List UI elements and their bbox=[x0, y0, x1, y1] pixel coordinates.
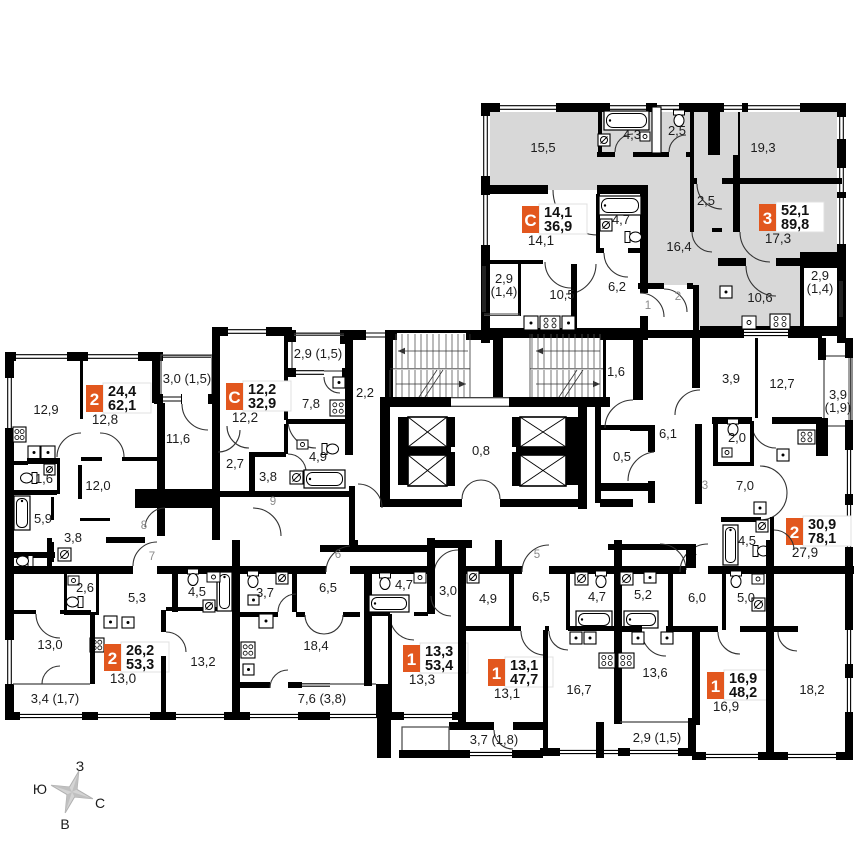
svg-text:7,6 (3,8): 7,6 (3,8) bbox=[298, 691, 346, 706]
svg-text:12,8: 12,8 bbox=[92, 412, 118, 427]
svg-text:З: З bbox=[76, 758, 84, 774]
svg-text:16,9: 16,9 bbox=[713, 699, 739, 714]
svg-text:(1,9): (1,9) bbox=[825, 400, 852, 415]
svg-text:3,0: 3,0 bbox=[439, 583, 457, 598]
svg-text:1: 1 bbox=[711, 677, 720, 696]
svg-text:1,6: 1,6 bbox=[607, 364, 625, 379]
svg-text:6: 6 bbox=[335, 549, 341, 561]
svg-text:2,5: 2,5 bbox=[668, 123, 686, 138]
svg-text:16,7: 16,7 bbox=[566, 682, 591, 697]
svg-text:12,7: 12,7 bbox=[769, 376, 794, 391]
svg-text:4,7: 4,7 bbox=[395, 577, 413, 592]
svg-text:13,3: 13,3 bbox=[409, 672, 435, 687]
svg-text:1,6: 1,6 bbox=[35, 471, 53, 486]
svg-text:13,0: 13,0 bbox=[37, 637, 62, 652]
svg-text:16,4: 16,4 bbox=[666, 239, 691, 254]
svg-text:12,9: 12,9 bbox=[33, 402, 58, 417]
svg-text:6,0: 6,0 bbox=[688, 590, 706, 605]
svg-text:4,3: 4,3 bbox=[623, 127, 641, 142]
svg-text:1: 1 bbox=[492, 664, 501, 683]
svg-text:4,7: 4,7 bbox=[612, 212, 630, 227]
svg-text:3,7: 3,7 bbox=[256, 585, 274, 600]
svg-text:С: С bbox=[524, 211, 536, 230]
svg-text:4,5: 4,5 bbox=[738, 533, 756, 548]
svg-text:5,9: 5,9 bbox=[34, 511, 52, 526]
svg-text:12,2: 12,2 bbox=[232, 410, 258, 425]
svg-text:9: 9 bbox=[270, 496, 276, 508]
svg-text:1: 1 bbox=[407, 650, 416, 669]
svg-text:2,6: 2,6 bbox=[76, 580, 94, 595]
svg-text:2: 2 bbox=[108, 649, 117, 668]
svg-text:5: 5 bbox=[534, 549, 540, 561]
svg-text:15,5: 15,5 bbox=[530, 140, 555, 155]
svg-text:7,0: 7,0 bbox=[736, 478, 754, 493]
svg-text:6,2: 6,2 bbox=[608, 279, 626, 294]
svg-text:3,8: 3,8 bbox=[64, 530, 82, 545]
svg-text:(1,4): (1,4) bbox=[491, 284, 518, 299]
svg-text:2: 2 bbox=[675, 291, 681, 303]
svg-text:3,7 (1,8): 3,7 (1,8) bbox=[470, 732, 518, 747]
svg-text:0,5: 0,5 bbox=[613, 449, 631, 464]
svg-text:С: С bbox=[95, 795, 105, 811]
svg-text:2,7: 2,7 bbox=[226, 456, 244, 471]
svg-text:4,5: 4,5 bbox=[188, 584, 206, 599]
svg-text:17,3: 17,3 bbox=[765, 231, 791, 246]
svg-text:3,9: 3,9 bbox=[722, 371, 740, 386]
svg-text:В: В bbox=[60, 816, 69, 832]
svg-text:4,7: 4,7 bbox=[588, 589, 606, 604]
svg-text:3,8: 3,8 bbox=[259, 469, 277, 484]
svg-text:14,1: 14,1 bbox=[528, 233, 554, 248]
svg-text:0,8: 0,8 bbox=[472, 443, 490, 458]
svg-text:5,2: 5,2 bbox=[634, 587, 652, 602]
svg-text:2,9 (1,5): 2,9 (1,5) bbox=[294, 346, 342, 361]
svg-text:12,0: 12,0 bbox=[85, 478, 110, 493]
svg-text:13,1: 13,1 bbox=[494, 686, 520, 701]
svg-text:(1,4): (1,4) bbox=[807, 281, 834, 296]
svg-text:18,2: 18,2 bbox=[799, 682, 824, 697]
svg-text:С: С bbox=[228, 388, 240, 407]
svg-text:13,2: 13,2 bbox=[190, 654, 215, 669]
svg-text:7,8: 7,8 bbox=[302, 396, 320, 411]
svg-text:10,5: 10,5 bbox=[549, 287, 574, 302]
svg-text:4,9: 4,9 bbox=[479, 591, 497, 606]
svg-text:6,5: 6,5 bbox=[319, 580, 337, 595]
svg-text:11,6: 11,6 bbox=[166, 431, 190, 446]
svg-text:3: 3 bbox=[702, 480, 708, 492]
svg-text:2: 2 bbox=[90, 390, 99, 409]
svg-text:27,9: 27,9 bbox=[792, 545, 818, 560]
svg-text:3,4 (1,7): 3,4 (1,7) bbox=[31, 691, 79, 706]
svg-text:4,9: 4,9 bbox=[309, 449, 327, 464]
svg-text:5,3: 5,3 bbox=[128, 590, 146, 605]
svg-text:6,5: 6,5 bbox=[532, 589, 550, 604]
svg-text:10,6: 10,6 bbox=[747, 290, 772, 305]
svg-text:1: 1 bbox=[645, 300, 651, 312]
svg-text:13,6: 13,6 bbox=[642, 665, 667, 680]
svg-text:2,9 (1,5): 2,9 (1,5) bbox=[633, 730, 681, 745]
svg-text:3: 3 bbox=[763, 209, 772, 228]
svg-text:8: 8 bbox=[141, 520, 147, 532]
svg-text:Ю: Ю bbox=[33, 781, 47, 797]
svg-text:7: 7 bbox=[149, 551, 155, 563]
svg-text:6,1: 6,1 bbox=[659, 426, 677, 441]
svg-text:2,2: 2,2 bbox=[356, 385, 374, 400]
svg-text:2,0: 2,0 bbox=[728, 430, 746, 445]
svg-text:2,5: 2,5 bbox=[697, 193, 715, 208]
svg-text:19,3: 19,3 bbox=[750, 140, 775, 155]
svg-text:5,0: 5,0 bbox=[737, 590, 755, 605]
svg-text:13,0: 13,0 bbox=[110, 671, 136, 686]
svg-text:18,4: 18,4 bbox=[303, 638, 328, 653]
svg-text:3,0 (1,5): 3,0 (1,5) bbox=[163, 371, 211, 386]
